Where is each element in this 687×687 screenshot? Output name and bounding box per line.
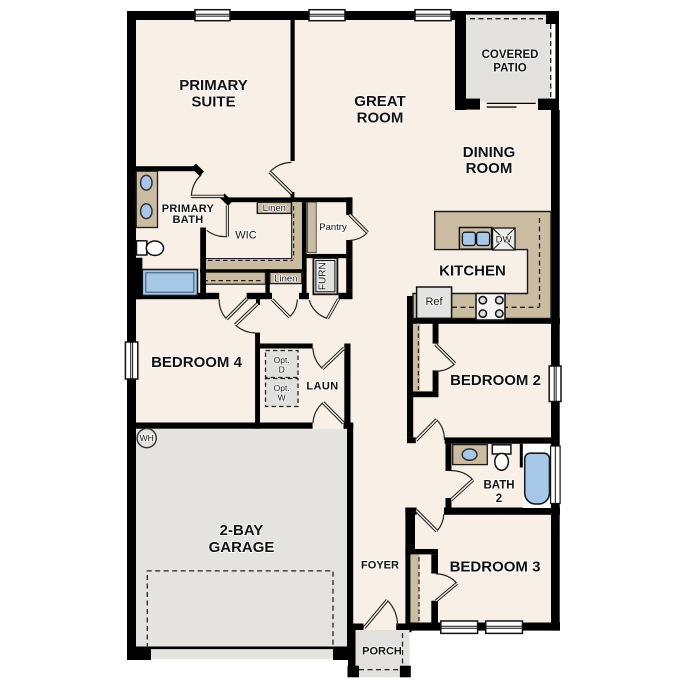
svg-text:2-BAY: 2-BAY <box>220 522 264 539</box>
svg-text:2: 2 <box>496 493 502 505</box>
svg-text:DINING: DINING <box>463 144 516 161</box>
svg-text:Opt.: Opt. <box>274 383 290 393</box>
svg-text:FURN: FURN <box>317 262 328 290</box>
svg-text:WH: WH <box>140 433 154 443</box>
svg-text:PORCH: PORCH <box>362 646 402 658</box>
svg-text:GARAGE: GARAGE <box>209 539 275 556</box>
svg-text:GREAT: GREAT <box>354 93 405 110</box>
svg-text:Pantry: Pantry <box>319 222 347 233</box>
svg-text:Opt.: Opt. <box>274 355 290 365</box>
svg-text:FOYER: FOYER <box>361 560 399 572</box>
svg-text:ROOM: ROOM <box>357 110 404 127</box>
svg-text:SUITE: SUITE <box>191 94 235 111</box>
svg-text:WIC: WIC <box>235 230 256 242</box>
svg-text:BEDROOM 3: BEDROOM 3 <box>450 559 541 576</box>
svg-text:PATIO: PATIO <box>493 63 526 75</box>
svg-text:COVERED: COVERED <box>482 49 539 61</box>
svg-text:ROOM: ROOM <box>466 160 513 177</box>
svg-text:BEDROOM 4: BEDROOM 4 <box>151 354 243 371</box>
svg-text:W: W <box>278 393 286 403</box>
svg-text:BATH: BATH <box>173 214 204 226</box>
svg-text:BEDROOM 2: BEDROOM 2 <box>450 372 541 389</box>
svg-text:LAUN: LAUN <box>306 381 338 393</box>
svg-text:KITCHEN: KITCHEN <box>439 262 506 279</box>
svg-text:PRIMARY: PRIMARY <box>179 77 248 94</box>
svg-text:BATH: BATH <box>483 480 514 492</box>
svg-text:D: D <box>279 365 285 375</box>
svg-text:Ref: Ref <box>425 296 443 308</box>
svg-text:DW: DW <box>496 234 512 245</box>
svg-text:Linen: Linen <box>274 273 297 284</box>
svg-text:Linen: Linen <box>263 203 286 214</box>
